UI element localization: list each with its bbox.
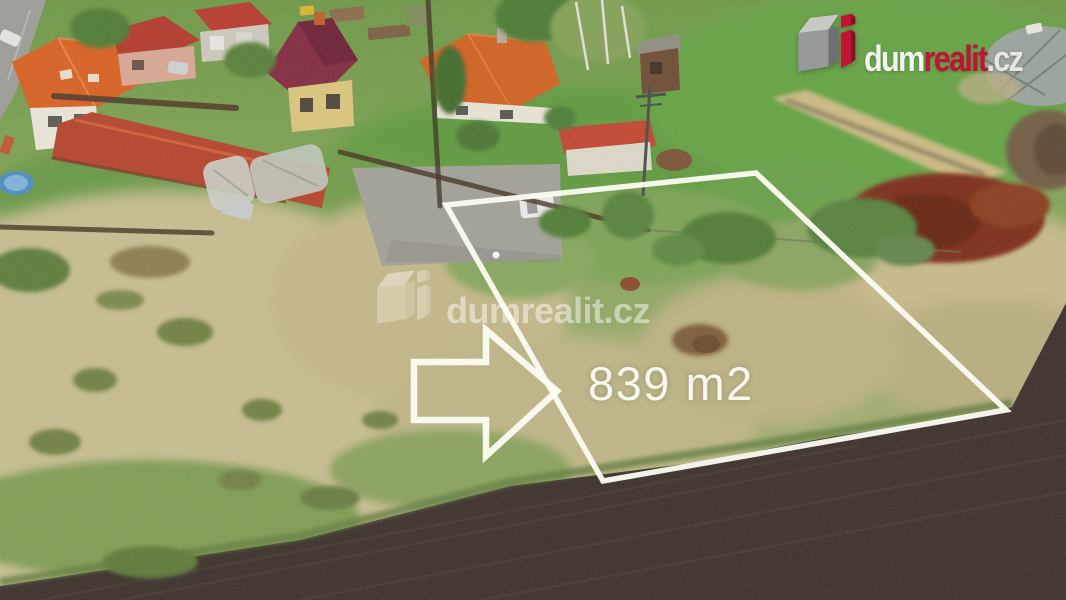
aerial-photo: 839 m2 dumrealit.cz dumrealit.cz — [0, 0, 1066, 600]
watermark-wordmark: dumrealit.cz — [446, 297, 650, 328]
direction-arrow-icon — [414, 330, 557, 456]
dumrealit-building-icon — [795, 10, 857, 76]
wordmark-cz: .cz — [604, 290, 651, 331]
dumrealit-logo: dumrealit.cz — [795, 8, 1050, 76]
dumrealit-building-icon — [374, 266, 432, 328]
wordmark-dum: dum — [864, 38, 924, 79]
area-label: 839 m2 — [588, 356, 754, 411]
dumrealit-watermark: dumrealit.cz — [374, 264, 650, 328]
brand-wordmark: dumrealit.cz — [864, 45, 1022, 76]
wordmark-cz: .cz — [986, 38, 1022, 79]
wordmark-realit: realit — [924, 38, 987, 79]
wordmark-dum: dum — [446, 290, 521, 331]
wordmark-realit: realit — [521, 290, 604, 331]
